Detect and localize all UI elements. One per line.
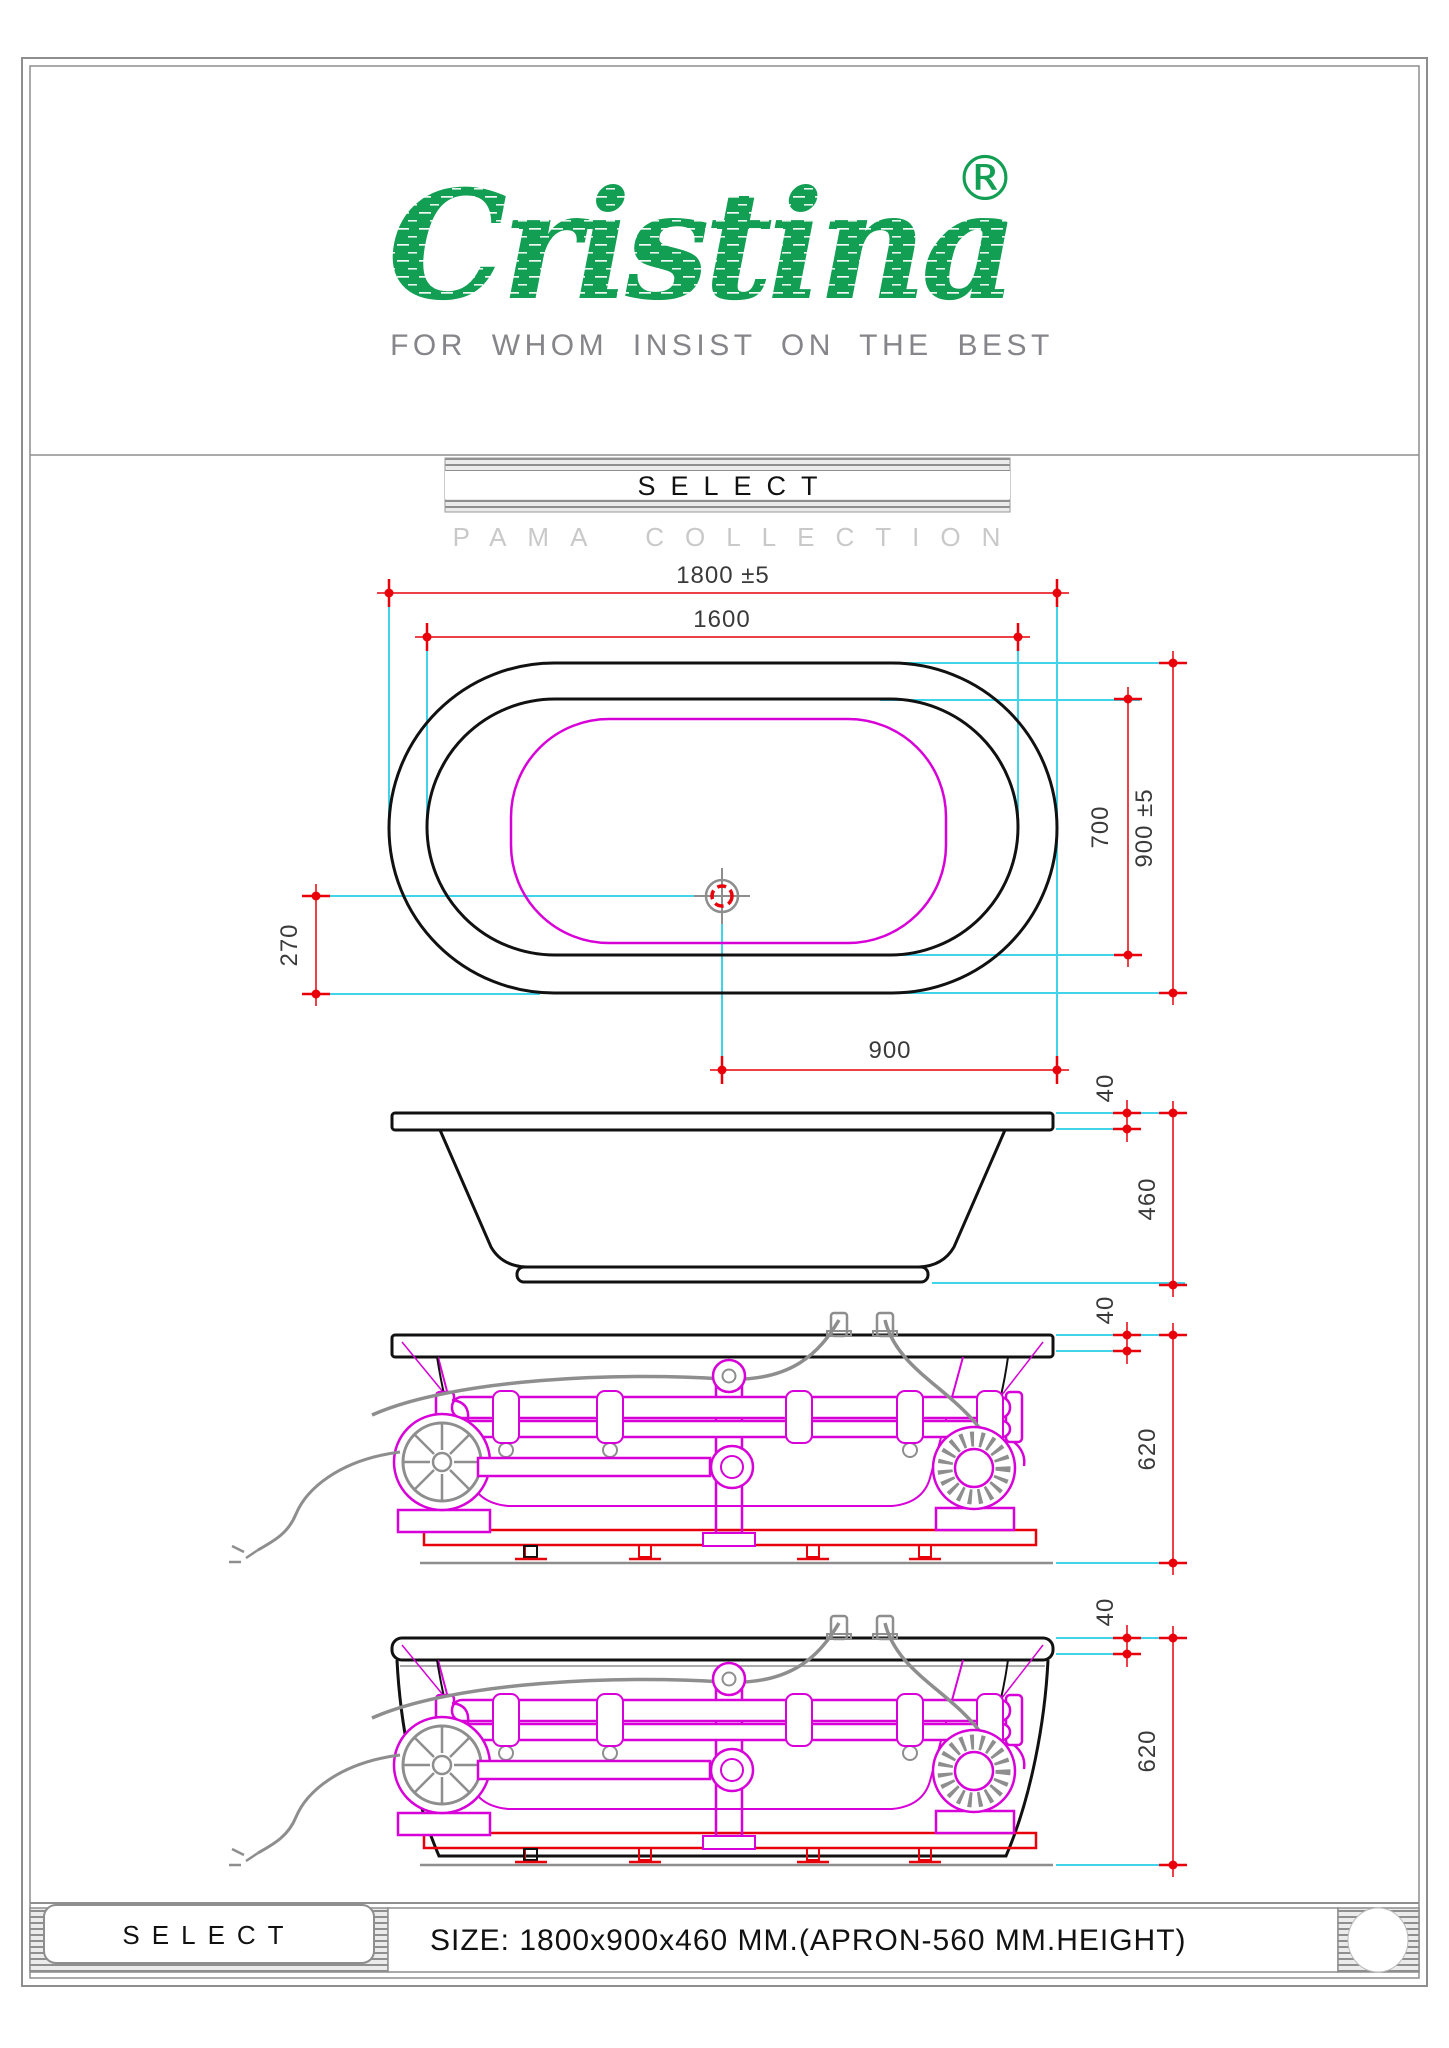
dim-overall-length: 1800 ±5 xyxy=(676,562,770,589)
whirlpool-internals xyxy=(229,1616,1043,1865)
brand-logo: Cristina ® FOR WHOM INSIST ON THE BEST xyxy=(388,142,1054,362)
dimension-1800: 1800 ±5 xyxy=(377,562,1069,607)
tub-rim-profile xyxy=(392,1638,1053,1660)
tub-rim-profile xyxy=(392,1113,1053,1130)
dim-body-height: 460 xyxy=(1134,1177,1161,1220)
drain-icon xyxy=(694,868,750,924)
top-view: 1800 ±5 1600 900 ±5 700 270 900 xyxy=(276,562,1187,1084)
dim-basin-width: 700 xyxy=(1087,805,1114,848)
logo-stamp-box xyxy=(1338,1908,1419,1972)
brand-name: Cristina xyxy=(388,158,1012,334)
dimension-40-apron: 40 xyxy=(1092,1598,1141,1667)
extension-lines xyxy=(304,583,1185,1082)
dim-drain-position: 900 xyxy=(868,1037,911,1064)
dim-rim-length: 1600 xyxy=(693,606,750,633)
size-label: SIZE: 1800x900x460 MM.(APRON-560 MM.HEIG… xyxy=(430,1924,1187,1957)
model-name-footer: SELECT xyxy=(122,1920,295,1950)
whirlpool-internals xyxy=(229,1313,1043,1562)
model-name-header: SELECT xyxy=(637,471,832,501)
side-view: 40 460 xyxy=(392,1074,1187,1297)
title-bar: SELECT SIZE: 1800x900x460 MM.(APRON-560 … xyxy=(30,1903,1419,1972)
dimension-1600: 1600 xyxy=(415,606,1030,651)
registered-mark-icon: ® xyxy=(954,142,1016,215)
brand-tagline: FOR WHOM INSIST ON THE BEST xyxy=(390,329,1054,362)
model-header: SELECT PAMA COLLECTION xyxy=(445,458,1021,552)
dimension-620-system: 620 xyxy=(1134,1323,1187,1575)
dim-rim-height-system: 40 xyxy=(1092,1296,1119,1325)
dim-rim-height-apron: 40 xyxy=(1092,1598,1119,1627)
tub-body-profile xyxy=(440,1130,1005,1267)
dimension-270: 270 xyxy=(276,884,330,1006)
tub-base-profile xyxy=(517,1267,928,1282)
dimension-620-apron: 620 xyxy=(1134,1626,1187,1877)
dimension-460: 460 xyxy=(1134,1101,1187,1297)
dimension-900w: 900 ±5 xyxy=(1131,651,1187,1005)
dimension-40-system: 40 xyxy=(1092,1296,1141,1364)
dim-drain-offset: 270 xyxy=(276,923,303,966)
collection-name: PAMA COLLECTION xyxy=(453,522,1022,552)
stamp-circle-icon xyxy=(1348,1908,1408,1972)
dimension-40-side: 40 xyxy=(1092,1074,1141,1142)
spec-sheet-page: Cristina ® FOR WHOM INSIST ON THE BEST S… xyxy=(0,0,1449,2048)
apron-view: 40 620 xyxy=(229,1598,1187,1877)
system-view: 40 620 xyxy=(229,1296,1187,1575)
extension-lines xyxy=(1056,1638,1185,1865)
technical-drawing: Cristina ® FOR WHOM INSIST ON THE BEST S… xyxy=(0,0,1449,2048)
tub-rim-profile xyxy=(392,1335,1053,1357)
dim-rim-height-side: 40 xyxy=(1092,1074,1119,1103)
dimension-900d: 900 xyxy=(710,1037,1069,1084)
extension-lines xyxy=(1056,1335,1185,1563)
dim-overall-width: 900 ±5 xyxy=(1131,788,1158,867)
dim-overall-height-apron: 620 xyxy=(1134,1729,1161,1772)
dim-overall-height-system: 620 xyxy=(1134,1427,1161,1470)
